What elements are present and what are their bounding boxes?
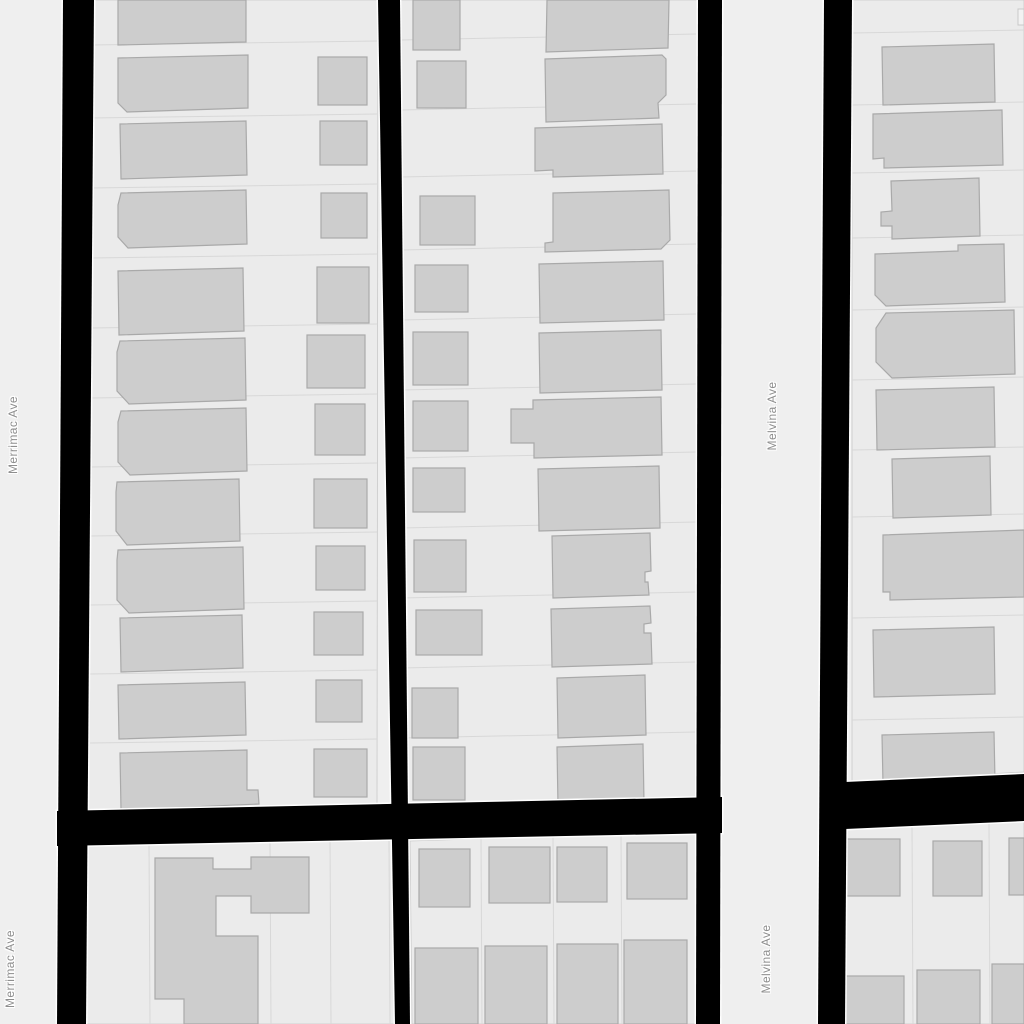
building-footprint [557, 944, 618, 1024]
building-footprint [882, 44, 995, 105]
building-footprint [876, 387, 995, 450]
building-footprint [419, 849, 470, 907]
building-footprint [316, 680, 362, 722]
building-footprint [117, 547, 244, 613]
building-footprint [1009, 838, 1024, 895]
building-footprint [120, 750, 259, 810]
building-footprint [933, 841, 982, 896]
building-footprint [415, 948, 478, 1024]
building-footprint [992, 964, 1024, 1024]
building-footprint [416, 610, 482, 655]
building-footprint [118, 0, 246, 45]
building-footprint [876, 310, 1015, 378]
extras-layer [1018, 9, 1024, 25]
building-footprint [843, 976, 904, 1024]
building-footprint [118, 408, 247, 475]
building-footprint [117, 338, 246, 404]
building-footprint [413, 747, 465, 800]
building-footprint [892, 456, 991, 518]
building-footprint [557, 847, 607, 902]
building-footprint [917, 970, 980, 1024]
building-footprint [315, 404, 365, 455]
building-footprint [314, 479, 367, 528]
road-vertical-3 [696, 0, 722, 1024]
building-footprint [883, 530, 1024, 600]
building-footprint [415, 265, 468, 312]
building-footprint [120, 121, 247, 179]
building-footprint [511, 397, 662, 458]
building-footprint [317, 267, 369, 323]
building-footprint [875, 244, 1005, 306]
building-footprint [314, 749, 367, 797]
map-viewport[interactable]: Merrimac Ave Merrimac Ave Melvina Ave Me… [0, 0, 1024, 1024]
building-footprint [321, 193, 367, 238]
map-svg [0, 0, 1024, 1024]
road-horizontal-east [845, 774, 1024, 829]
building-footprint [320, 121, 367, 165]
building-footprint [552, 533, 651, 598]
street-label-merrimac-north: Merrimac Ave [6, 396, 20, 474]
building-footprint [413, 332, 468, 385]
building-footprint [545, 55, 666, 122]
building-footprint [118, 268, 244, 335]
building-footprint [307, 335, 365, 388]
building-footprint [318, 57, 367, 105]
building-footprint [545, 190, 670, 252]
building-footprint [413, 0, 460, 50]
small-parcel-box [1018, 9, 1024, 25]
building-footprint [881, 178, 980, 239]
building-footprint [489, 847, 550, 903]
building-footprint [624, 940, 687, 1024]
building-footprint [843, 839, 900, 896]
building-footprint [557, 744, 644, 806]
building-footprint [551, 606, 652, 667]
street-label-melvina-south: Melvina Ave [759, 925, 773, 994]
building-footprint [118, 190, 247, 248]
building-footprint [417, 61, 466, 108]
building-footprint [535, 124, 663, 177]
building-footprint [420, 196, 475, 245]
building-footprint [546, 0, 669, 52]
building-footprint [316, 546, 365, 590]
building-footprint [120, 615, 243, 672]
building-footprint [413, 468, 465, 512]
building-footprint [539, 261, 664, 323]
building-footprint [538, 466, 660, 531]
building-footprint [412, 688, 458, 738]
building-footprint [485, 946, 547, 1024]
building-footprint [118, 55, 248, 112]
street-label-melvina-north: Melvina Ave [765, 382, 779, 451]
building-footprint [873, 110, 1003, 168]
building-footprint [118, 682, 246, 739]
building-footprint [627, 843, 687, 899]
building-footprint [413, 401, 468, 451]
building-footprint [539, 330, 662, 393]
building-footprint [873, 627, 995, 697]
building-footprint [314, 612, 363, 655]
building-footprint [414, 540, 466, 592]
building-footprint [557, 675, 646, 738]
street-label-merrimac-south: Merrimac Ave [3, 930, 17, 1008]
building-footprint [116, 479, 240, 545]
